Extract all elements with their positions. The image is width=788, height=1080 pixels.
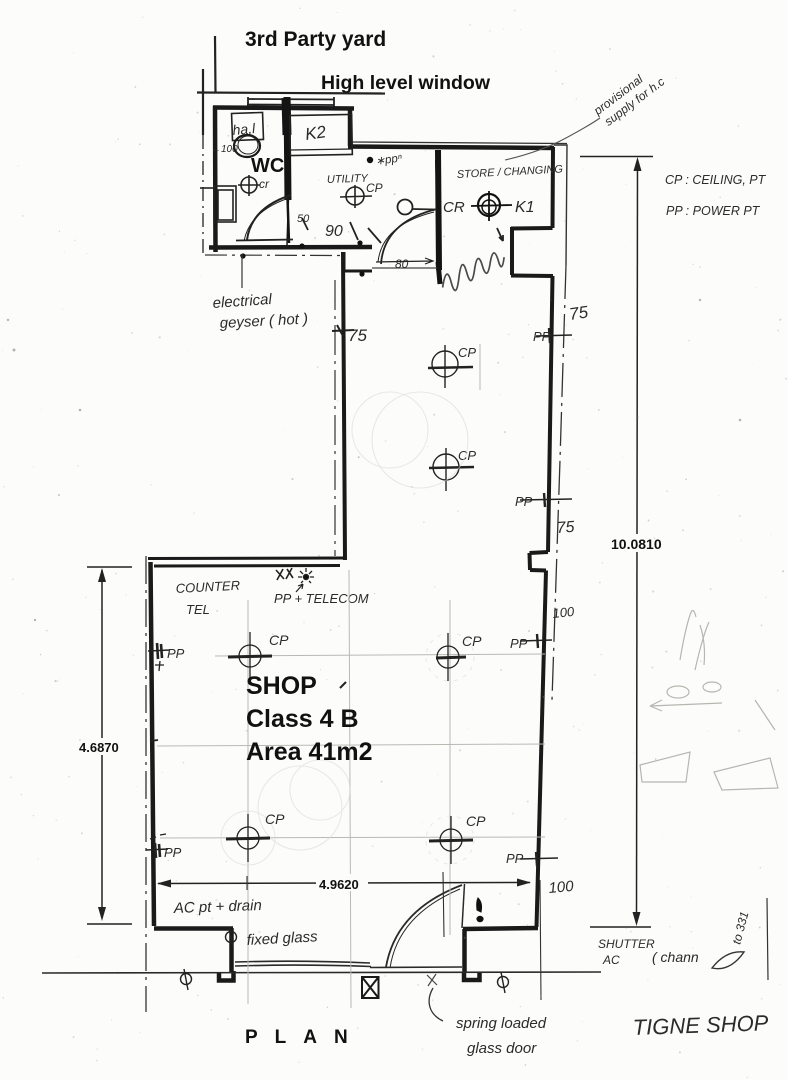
svg-text:4.6870: 4.6870 bbox=[79, 740, 119, 755]
svg-text:CP: CP bbox=[366, 181, 383, 195]
svg-text:CP: CP bbox=[265, 811, 285, 827]
svg-text:CP: CP bbox=[462, 633, 482, 649]
svg-text:50: 50 bbox=[297, 213, 310, 225]
svg-text:Area 41m2: Area 41m2 bbox=[246, 738, 372, 766]
svg-text:spring loaded: spring loaded bbox=[456, 1015, 547, 1032]
svg-text:K1: K1 bbox=[515, 199, 535, 216]
svg-text:CP: CP bbox=[458, 345, 476, 360]
svg-text:CR: CR bbox=[443, 199, 465, 216]
svg-text:PP : POWER PT: PP : POWER PT bbox=[666, 204, 761, 218]
svg-text:cr: cr bbox=[259, 177, 270, 191]
svg-text:75: 75 bbox=[568, 302, 590, 324]
svg-text:PP: PP bbox=[164, 845, 182, 860]
svg-text:PP + TELECOM: PP + TELECOM bbox=[274, 591, 369, 606]
svg-text:PP: PP bbox=[515, 494, 533, 509]
svg-text:CP : CEILING, PT: CP : CEILING, PT bbox=[665, 173, 767, 187]
svg-text:75: 75 bbox=[348, 326, 367, 345]
svg-text:80: 80 bbox=[395, 257, 409, 271]
svg-text:( chann: ( chann bbox=[652, 949, 699, 965]
svg-text:90: 90 bbox=[325, 223, 343, 240]
svg-text:CP: CP bbox=[269, 632, 289, 648]
svg-text:100: 100 bbox=[548, 878, 575, 897]
svg-text:Class 4 B: Class 4 B bbox=[246, 705, 359, 733]
svg-text:PP: PP bbox=[510, 636, 528, 651]
svg-text:WC: WC bbox=[251, 155, 284, 177]
svg-text:PP: PP bbox=[167, 646, 185, 661]
svg-text:SHOP: SHOP bbox=[246, 672, 317, 700]
svg-text:75: 75 bbox=[556, 519, 575, 537]
svg-text:PP: PP bbox=[506, 851, 524, 866]
svg-text:glass door: glass door bbox=[467, 1040, 537, 1057]
svg-text:3rd Party yard: 3rd Party yard bbox=[245, 28, 386, 51]
svg-text:SHUTTER: SHUTTER bbox=[598, 937, 655, 951]
svg-text:UTILITY: UTILITY bbox=[327, 173, 369, 186]
svg-text:CP: CP bbox=[466, 813, 486, 829]
svg-text:AC: AC bbox=[602, 953, 620, 967]
svg-text:High level window: High level window bbox=[321, 72, 491, 94]
svg-text:K2: K2 bbox=[304, 122, 328, 144]
svg-text:TIGNE SHOP: TIGNE SHOP bbox=[632, 1010, 769, 1040]
svg-text:100: 100 bbox=[552, 604, 576, 621]
svg-text:TEL: TEL bbox=[186, 602, 210, 617]
svg-text:4.9620: 4.9620 bbox=[319, 877, 359, 892]
svg-text:←100: ←100 bbox=[211, 144, 238, 155]
svg-text:PLAN: PLAN bbox=[245, 1027, 365, 1048]
svg-text:PP: PP bbox=[533, 329, 551, 344]
